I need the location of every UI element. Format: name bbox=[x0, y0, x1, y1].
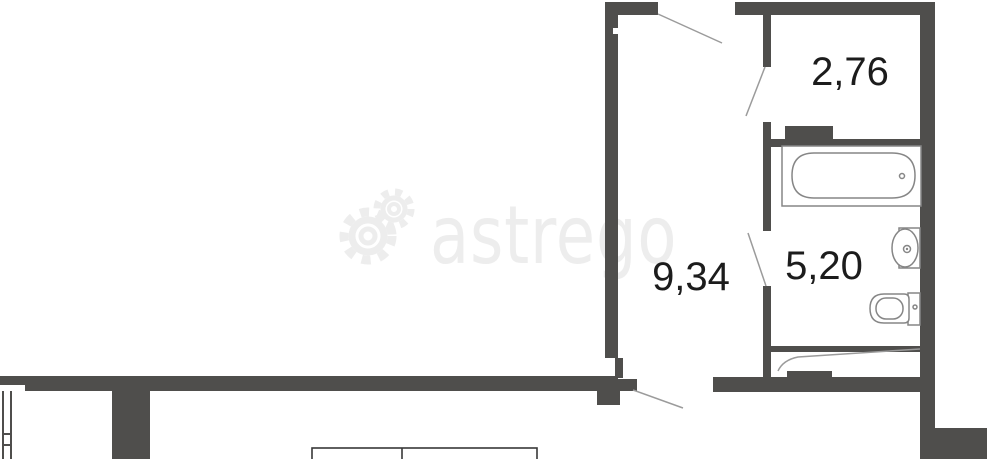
wall-column-bottom-left bbox=[112, 391, 150, 459]
wall-bottom-left bbox=[0, 376, 618, 391]
wall-room-divider-lower bbox=[763, 286, 771, 392]
bathtub-drain bbox=[900, 174, 905, 179]
door-swing-arc-hall bbox=[778, 349, 920, 371]
door-swing-line-room-top-right bbox=[746, 67, 765, 116]
toilet-button bbox=[913, 305, 917, 309]
wall-bottom-right-block bbox=[927, 428, 987, 459]
window-frame bbox=[2, 391, 12, 459]
floorplan-canvas: astrego bbox=[0, 0, 1000, 459]
toilet-seat bbox=[876, 298, 903, 319]
table-outline bbox=[312, 448, 537, 459]
wall-top-right bbox=[735, 2, 934, 15]
table-top bbox=[312, 448, 537, 459]
wall-room-divider-middle bbox=[763, 122, 771, 231]
area-label-bathroom: 5,20 bbox=[764, 246, 884, 286]
wall-step-notch bbox=[0, 385, 25, 391]
sink-icon bbox=[892, 228, 920, 268]
wall-notch bbox=[613, 28, 620, 34]
wall-stub-notch bbox=[618, 379, 637, 391]
toilet-icon bbox=[870, 293, 920, 325]
door-swing-line-top-entry bbox=[658, 14, 722, 43]
area-label-room-top-right: 2,76 bbox=[790, 52, 910, 92]
vent-shaft-block bbox=[785, 126, 833, 139]
wall-room-divider-upper bbox=[763, 15, 771, 67]
bathtub-icon bbox=[782, 146, 921, 206]
wall-corridor-left bbox=[605, 2, 618, 358]
area-label-hall: 9,34 bbox=[631, 257, 751, 297]
bathtub-basin bbox=[792, 153, 915, 198]
wall-right bbox=[920, 2, 935, 459]
wall-corridor-left-jog bbox=[615, 358, 623, 378]
door-swing-line-bottom bbox=[633, 390, 683, 408]
sink-drain-dot bbox=[906, 248, 908, 250]
wall-stub-bottom bbox=[597, 391, 620, 405]
wall-bottom-right bbox=[713, 377, 920, 392]
